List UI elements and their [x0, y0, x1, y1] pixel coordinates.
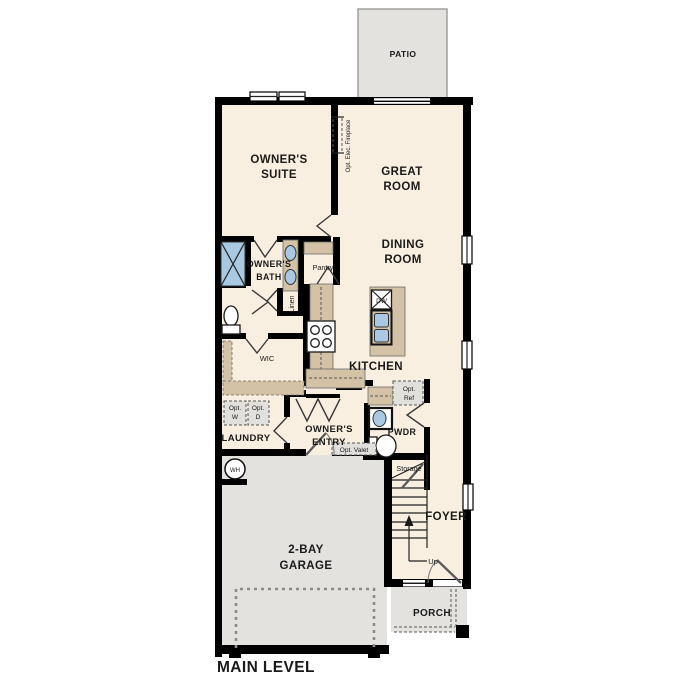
- toilet-tank: [222, 325, 240, 334]
- ref-label: Ref: [404, 395, 414, 402]
- ref-label: Opt.: [403, 386, 415, 393]
- storage-label: Storage: [396, 464, 421, 473]
- porch-column: [456, 625, 469, 638]
- pantry-shelf: [304, 242, 333, 254]
- great-room-label: GREAT: [381, 166, 422, 178]
- toilet-icon: [376, 435, 396, 457]
- patio-label: PATIO: [390, 49, 417, 59]
- wic-label: WIC: [260, 354, 275, 363]
- pantry-label: Pantry: [313, 263, 334, 272]
- burner-icon: [311, 339, 320, 348]
- sink-icon: [285, 270, 296, 285]
- linen-label: Linen: [289, 295, 296, 312]
- powder-label: PWDR: [388, 427, 417, 437]
- owners-suite-label: SUITE: [261, 169, 297, 181]
- owners-entry-label: ENTRY: [312, 437, 346, 448]
- owners-entry-label: OWNER'S: [305, 424, 353, 435]
- owners-bath-label: BATH: [256, 272, 281, 282]
- dryer-label: D: [256, 414, 261, 421]
- owners-bath-label: OWNER'S: [247, 259, 291, 269]
- garage-label: 2-BAY: [288, 544, 323, 556]
- dishwasher-label: DW: [376, 298, 388, 305]
- up-label: Up: [428, 557, 438, 566]
- water-heater: WH: [225, 459, 245, 479]
- dryer-label: Opt.: [252, 405, 264, 412]
- plan-title: MAIN LEVEL: [217, 659, 315, 676]
- toilet-icon: [224, 306, 238, 326]
- floor-plan-drawing: PATIO: [0, 0, 687, 687]
- laundry-label: LAUNDRY: [222, 433, 271, 444]
- washer-label: W: [232, 414, 239, 421]
- great-room-label: ROOM: [383, 181, 420, 193]
- kitchen-label: KITCHEN: [349, 361, 403, 373]
- sink-basin: [375, 330, 389, 343]
- owners-suite-label: OWNER'S: [250, 154, 307, 166]
- porch-label: PORCH: [413, 608, 451, 619]
- sink-icon: [373, 411, 386, 427]
- patio-area: PATIO: [358, 9, 447, 98]
- fireplace-label: Opt. Elec. Fireplace: [346, 119, 352, 172]
- floor-plan-page: PATIO: [0, 0, 687, 687]
- stove-icon: [307, 321, 335, 352]
- washer-label: Opt.: [229, 405, 241, 412]
- water-heater-label: WH: [230, 468, 240, 474]
- dining-room-label: ROOM: [384, 254, 421, 266]
- burner-icon: [323, 339, 332, 348]
- foyer-label: FOYER: [425, 511, 467, 523]
- valet-label: Opt. Valet: [340, 447, 369, 454]
- dining-room-label: DINING: [382, 239, 425, 251]
- sink-basin: [375, 314, 389, 328]
- burner-icon: [323, 326, 332, 335]
- garage-label: GARAGE: [280, 560, 333, 572]
- burner-icon: [311, 326, 320, 335]
